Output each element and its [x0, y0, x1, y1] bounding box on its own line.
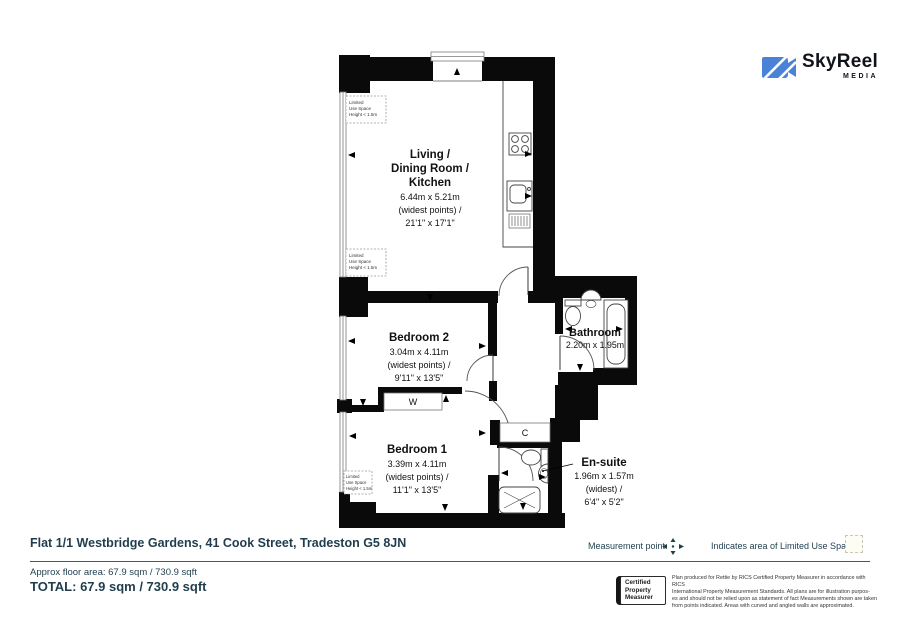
shower-tray-icon — [499, 487, 540, 513]
floorplan-page: W C Limited Use Space Height < 1.5m Limi… — [0, 0, 900, 636]
svg-text:(widest points) /: (widest points) / — [387, 360, 451, 370]
svg-text:Kitchen: Kitchen — [409, 177, 451, 189]
svg-text:Limited: Limited — [349, 253, 364, 258]
measurement-point-icon — [662, 538, 684, 555]
brand-subtitle: MEDIA — [802, 73, 878, 80]
approx-area: Approx floor area: 67.9 sqm / 730.9 sqft — [30, 567, 197, 578]
ensuite-toilet-icon — [522, 449, 549, 466]
svg-text:6.44m x 5.21m: 6.44m x 5.21m — [400, 192, 460, 202]
svg-text:6'4" x 5'2": 6'4" x 5'2" — [584, 497, 623, 507]
basin-icon — [581, 290, 601, 308]
svg-text:21'1" x 17'1": 21'1" x 17'1" — [405, 218, 454, 228]
svg-text:Use Space: Use Space — [346, 480, 367, 485]
limited-use-box: Limited Use Space Height < 1.5m — [346, 96, 386, 123]
svg-text:9'11" x 13'5": 9'11" x 13'5" — [395, 373, 444, 383]
limited-use-box: Limited Use Space Height < 1.5m — [346, 249, 386, 276]
svg-text:3.04m x 4.11m: 3.04m x 4.11m — [390, 347, 449, 357]
rics-cert-label: Certified Property Measurer — [620, 576, 666, 605]
svg-text:Dining Room /: Dining Room / — [391, 163, 470, 175]
ensuite-label: En-suite 1.96m x 1.57m (widest) / 6'4" x… — [574, 457, 634, 507]
ensuite-basin-icon — [539, 464, 549, 483]
limited-use-swatch — [845, 535, 863, 553]
bedroom2-label: Bedroom 2 3.04m x 4.11m (widest points) … — [387, 332, 451, 383]
appliance-grill-icon — [509, 214, 530, 228]
svg-text:Height < 1.5m: Height < 1.5m — [346, 486, 373, 491]
svg-text:Bedroom 1: Bedroom 1 — [387, 444, 448, 456]
svg-text:(widest points) /: (widest points) / — [398, 205, 462, 215]
limited-use-box: Limited Use Space Height < 1.5m — [344, 471, 373, 494]
bathroom-label: Bathroom 2.20m x 1.95m — [566, 327, 624, 350]
svg-text:3.39m x 4.11m: 3.39m x 4.11m — [388, 459, 447, 469]
measurement-point-label: Measurement point — [588, 541, 665, 551]
kitchen-fixtures — [503, 81, 533, 247]
brand-logo: SkyReel MEDIA — [762, 50, 882, 86]
svg-text:(widest) /: (widest) / — [586, 484, 623, 494]
wardrobe-label: W — [409, 397, 418, 407]
svg-text:Limited: Limited — [346, 474, 360, 479]
svg-text:Use Space: Use Space — [349, 259, 372, 264]
svg-text:Bedroom 2: Bedroom 2 — [389, 332, 449, 344]
svg-text:Use Space: Use Space — [349, 106, 372, 111]
living-room-label: Living / Dining Room / Kitchen 6.44m x 5… — [391, 149, 470, 228]
svg-text:En-suite: En-suite — [581, 457, 626, 469]
skyreel-logo-icon — [762, 51, 798, 84]
limited-use-label: Indicates area of Limited Use Space — [711, 541, 856, 551]
storage: W C — [384, 393, 550, 442]
cupboard-label: C — [522, 428, 529, 438]
svg-text:Height < 1.5m: Height < 1.5m — [349, 265, 377, 270]
brand-name: SkyReel — [802, 51, 880, 73]
address-title: Flat 1/1 Westbridge Gardens, 41 Cook Str… — [30, 536, 406, 550]
svg-text:2.20m x 1.95m: 2.20m x 1.95m — [566, 340, 624, 350]
bedroom1-label: Bedroom 1 3.39m x 4.11m (widest points) … — [385, 444, 449, 495]
total-area: TOTAL: 67.9 sqm / 730.9 sqft — [30, 579, 207, 594]
svg-text:(widest points) /: (widest points) / — [385, 472, 449, 482]
svg-text:1.96m x 1.57m: 1.96m x 1.57m — [574, 471, 634, 481]
svg-text:Height < 1.5m: Height < 1.5m — [349, 112, 377, 117]
disclaimer: Plan produced for Rettie by RICS Certifi… — [672, 575, 878, 610]
svg-text:Bathroom: Bathroom — [569, 327, 621, 339]
svg-text:Living /: Living / — [410, 149, 451, 161]
toilet-icon — [565, 300, 581, 326]
room-labels: Living / Dining Room / Kitchen 6.44m x 5… — [385, 149, 633, 507]
divider-line — [30, 561, 870, 562]
svg-text:11'1" x 13'5": 11'1" x 13'5" — [393, 485, 442, 495]
svg-text:Limited: Limited — [349, 100, 364, 105]
